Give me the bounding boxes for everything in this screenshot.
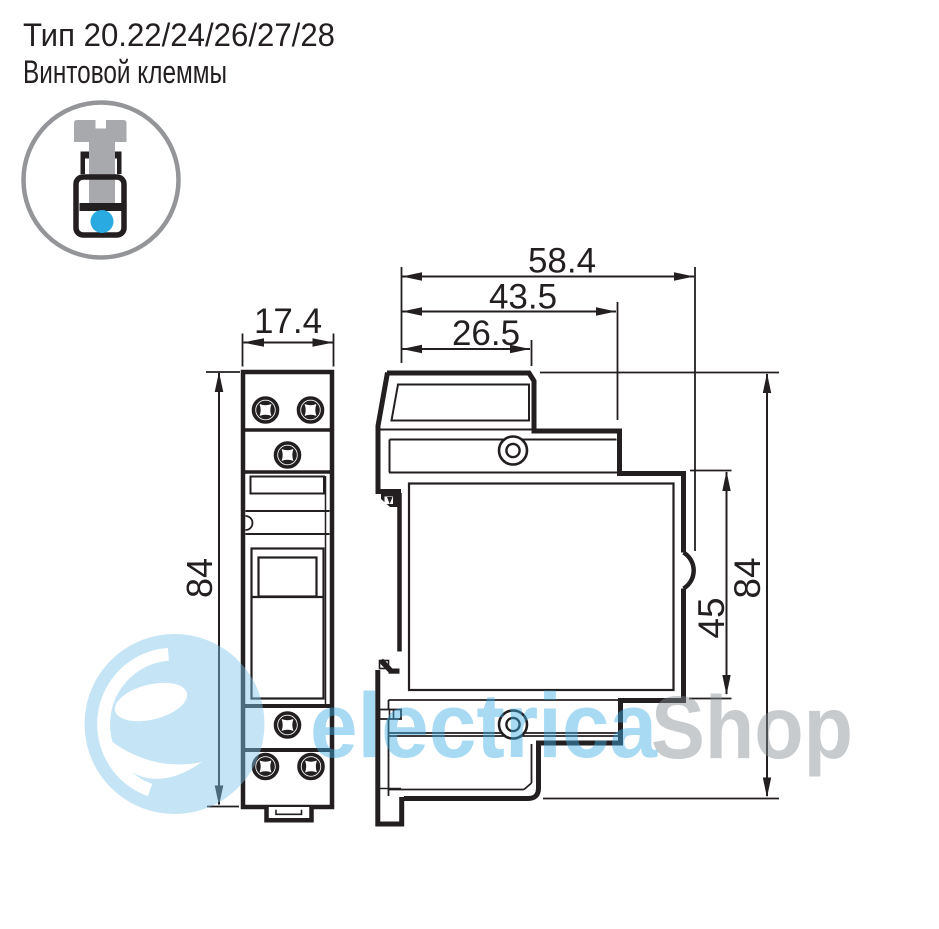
svg-text:26.5: 26.5: [452, 314, 520, 353]
svg-text:Винтовой клеммы: Винтовой клеммы: [23, 54, 227, 90]
svg-text:17.4: 17.4: [254, 302, 322, 341]
svg-text:58.4: 58.4: [528, 242, 596, 281]
svg-text:84: 84: [727, 557, 768, 598]
svg-text:84: 84: [179, 558, 220, 598]
svg-text:electrica: electrica: [310, 675, 658, 777]
svg-text:Shop: Shop: [651, 677, 853, 777]
svg-text:Тип 20.22/24/26/27/28: Тип 20.22/24/26/27/28: [23, 17, 335, 53]
